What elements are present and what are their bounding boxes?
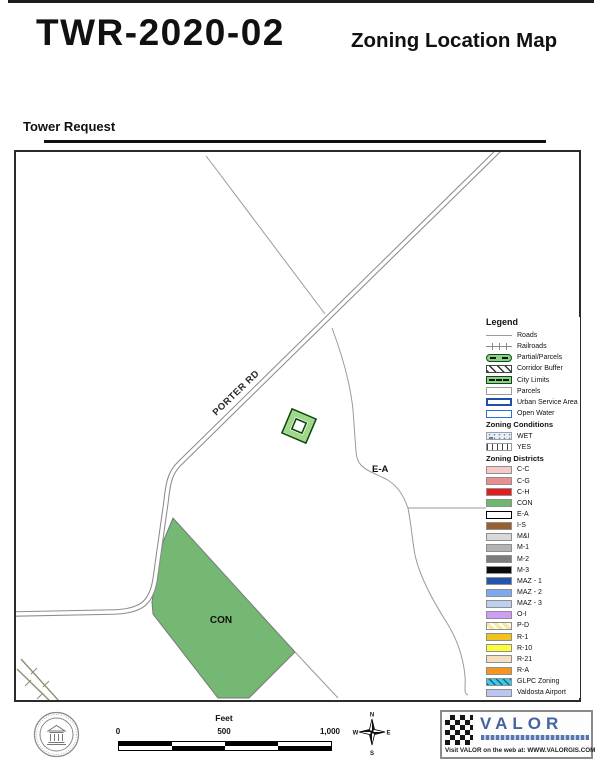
valor-tagline-bar	[481, 735, 589, 740]
compass-w: W	[353, 731, 359, 737]
legend-item: E-A	[486, 509, 580, 520]
legend-item: O-I	[486, 609, 580, 620]
legend-item: P-D	[486, 620, 580, 631]
legend-item: MAZ - 2	[486, 587, 580, 598]
legend-districts-header: Zoning Districts	[486, 453, 580, 465]
legend-item: C-G	[486, 476, 580, 487]
legend-swatch-maz-2	[486, 589, 512, 597]
legend-label: Parcels	[517, 388, 540, 395]
legend-label: YES	[517, 444, 531, 451]
legend-swatch-partial-parcels	[486, 354, 512, 362]
legend-label: MAZ - 1	[517, 578, 542, 585]
compass-s: S	[370, 751, 374, 757]
legend-item: M-3	[486, 565, 580, 576]
legend-swatch-m-1	[486, 544, 512, 552]
compass-e: E	[386, 731, 390, 737]
legend-item: Urban Service Area	[486, 397, 580, 408]
legend-item: Valdosta Airport	[486, 687, 580, 698]
compass-n: N	[370, 713, 374, 719]
legend-panel: Legend RoadsRailroadsPartial/ParcelsCorr…	[486, 317, 580, 698]
legend-swatch-city-limits	[486, 376, 512, 384]
legend-swatch-open-water	[486, 410, 512, 418]
legend-label: R-1	[517, 634, 528, 641]
parcel-line-southeast	[295, 652, 338, 698]
legend-swatch-railroads	[486, 343, 512, 350]
legend-item: MAZ - 3	[486, 598, 580, 609]
legend-item: I-S	[486, 520, 580, 531]
legend-swatch-roads	[486, 335, 512, 336]
legend-item: GLPC Zoning	[486, 676, 580, 687]
legend-label: R-10	[517, 645, 532, 652]
legend-item: YES	[486, 442, 580, 453]
legend-swatch-parcels	[486, 387, 512, 395]
legend-label: CON	[517, 500, 533, 507]
legend-swatch-r-10	[486, 644, 512, 652]
legend-conditions-header: Zoning Conditions	[486, 419, 580, 431]
legend-swatch-valdosta-airport	[486, 689, 512, 697]
legend-swatch-r-1	[486, 633, 512, 641]
case-id-title: TWR-2020-02	[36, 12, 285, 54]
map-title: Zoning Location Map	[351, 29, 557, 53]
legend-swatch-m-i	[486, 533, 512, 541]
legend-swatch-glpc-zoning	[486, 678, 512, 686]
legend-label: GLPC Zoning	[517, 678, 559, 685]
legend-item: C-C	[486, 464, 580, 475]
legend-item: M-2	[486, 554, 580, 565]
legend-swatch-yes	[486, 443, 512, 451]
valor-wordmark: VALOR	[480, 714, 563, 734]
legend-swatch-maz-3	[486, 600, 512, 608]
legend-item: WET	[486, 431, 580, 442]
legend-swatch-m-3	[486, 566, 512, 574]
legend-swatch-c-h	[486, 488, 512, 496]
legend-swatch-wet	[486, 432, 512, 440]
valor-web-text: Visit VALOR on the web at: WWW.VALORGIS.…	[445, 747, 595, 754]
subtitle-rule	[44, 140, 546, 143]
legend-label: R-21	[517, 656, 532, 663]
legend-item: Partial/Parcels	[486, 352, 580, 363]
legend-label: Railroads	[517, 343, 547, 350]
legend-label: O-I	[517, 611, 527, 618]
ea-zone-label: E-A	[372, 464, 389, 475]
legend-label: I-S	[517, 522, 526, 529]
scale-tick-500: 500	[217, 727, 230, 736]
legend-swatch-c-c	[486, 466, 512, 474]
legend-label: Urban Service Area	[517, 399, 578, 406]
legend-swatch-con	[486, 499, 512, 507]
tower-parcel-symbol	[282, 409, 316, 443]
legend-swatch-urban-service-area	[486, 398, 512, 406]
compass-rose-icon: N S W E	[350, 706, 394, 758]
legend-item: Parcels	[486, 386, 580, 397]
legend-label: R-A	[517, 667, 529, 674]
legend-swatch-m-2	[486, 555, 512, 563]
legend-item: R-21	[486, 654, 580, 665]
legend-item: C-H	[486, 487, 580, 498]
legend-label: Roads	[517, 332, 537, 339]
legend-label: Open Water	[517, 410, 554, 417]
scale-tick-1000: 1,000	[320, 727, 340, 736]
county-seal	[33, 711, 80, 758]
legend-item: M-1	[486, 542, 580, 553]
legend-item: R-10	[486, 643, 580, 654]
legend-label: WET	[517, 433, 533, 440]
legend-label: M&I	[517, 533, 529, 540]
legend-swatch-p-d	[486, 622, 512, 630]
legend-label: City Limits	[517, 377, 549, 384]
legend-item: Open Water	[486, 408, 580, 419]
legend-swatch-r-21	[486, 655, 512, 663]
valor-checker-icon	[445, 715, 473, 745]
legend-swatch-e-a	[486, 511, 512, 519]
legend-label: E-A	[517, 511, 529, 518]
legend-label: Partial/Parcels	[517, 354, 562, 361]
legend-label: MAZ - 2	[517, 589, 542, 596]
scale-bar: Feet 0 500 1,000	[110, 711, 350, 757]
legend-label: M-2	[517, 556, 529, 563]
legend-label: M-3	[517, 567, 529, 574]
parcel-line-north	[206, 156, 325, 314]
con-polygon	[152, 518, 295, 698]
page-top-rule	[8, 0, 594, 3]
legend-swatch-c-g	[486, 477, 512, 485]
scale-bar-graphic	[118, 741, 332, 751]
scale-tick-0: 0	[116, 727, 120, 736]
legend-label: C-C	[517, 466, 529, 473]
legend-item: Railroads	[486, 341, 580, 352]
railroad-lines	[17, 659, 59, 700]
scale-unit-label: Feet	[215, 713, 232, 723]
legend-label: C-H	[517, 489, 529, 496]
legend-swatch-i-s	[486, 522, 512, 530]
request-subtitle: Tower Request	[23, 119, 115, 134]
legend-swatch-o-i	[486, 611, 512, 619]
con-zone-label: CON	[210, 615, 232, 626]
legend-item: R-A	[486, 665, 580, 676]
legend-label: M-1	[517, 544, 529, 551]
legend-label: MAZ - 3	[517, 600, 542, 607]
legend-label: P-D	[517, 622, 529, 629]
legend-label: C-G	[517, 478, 530, 485]
parcel-line-east	[332, 328, 468, 695]
legend-item: Roads	[486, 330, 580, 341]
legend-item: M&I	[486, 531, 580, 542]
legend-item: Corridor Buffer	[486, 363, 580, 374]
legend-title: Legend	[486, 317, 580, 330]
legend-item: CON	[486, 498, 580, 509]
legend-swatch-corridor-buffer	[486, 365, 512, 373]
legend-item: R-1	[486, 632, 580, 643]
legend-item: City Limits	[486, 375, 580, 386]
legend-item: MAZ - 1	[486, 576, 580, 587]
legend-label: Corridor Buffer	[517, 365, 563, 372]
legend-label: Valdosta Airport	[517, 689, 566, 696]
zoning-map-page: { "header": { "case_id": "TWR-2020-02", …	[0, 0, 600, 777]
valor-logo: VALOR Visit VALOR on the web at: WWW.VAL…	[440, 710, 593, 759]
legend-swatch-maz-1	[486, 577, 512, 585]
legend-swatch-r-a	[486, 667, 512, 675]
